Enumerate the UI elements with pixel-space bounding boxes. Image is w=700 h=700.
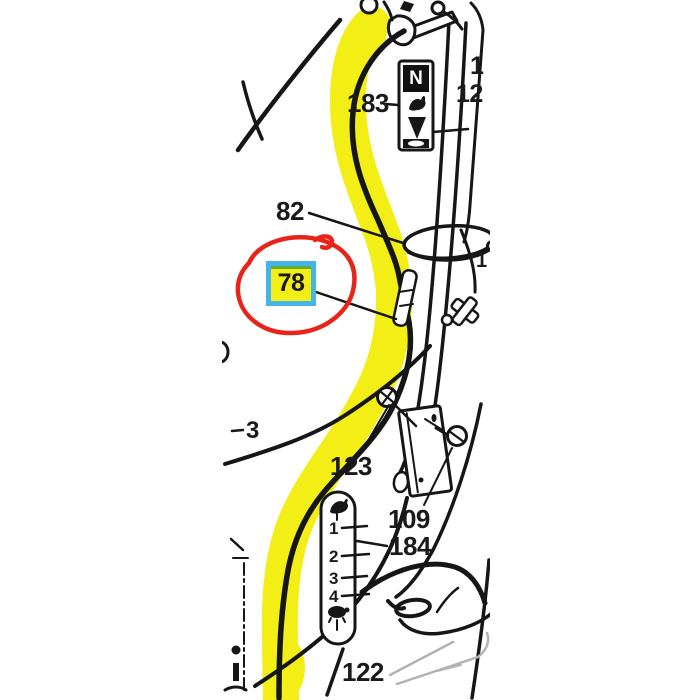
- part-label-12-partial: 12: [456, 82, 483, 107]
- part-label-1-partial: 1: [470, 54, 483, 79]
- part-label-1b-partial: 1: [476, 251, 487, 271]
- left-edge-partial-marks: [212, 342, 246, 690]
- handle-grip-upper-left: [238, 20, 340, 150]
- scale-mark-3: 3: [329, 570, 338, 587]
- scale-mark-1: 1: [329, 520, 338, 537]
- decal-letter-badge: N: [403, 65, 429, 92]
- part-label-184: 184: [389, 533, 431, 559]
- part-label-123: 123: [330, 453, 372, 479]
- part-label-109: 109: [388, 506, 430, 532]
- scale-mark-4: 4: [329, 588, 338, 605]
- part-label-82: 82: [276, 198, 304, 224]
- callout-box-78: 78: [266, 261, 316, 306]
- part-label-3-partial: 3: [246, 419, 259, 443]
- part-label-122: 122: [342, 659, 384, 685]
- part-label-78: 78: [278, 271, 305, 296]
- part-label-183: 183: [347, 90, 389, 116]
- scale-mark-2: 2: [329, 548, 338, 565]
- deck-outline-light: [390, 633, 488, 684]
- parts-diagram-page: 78 183 82 123 109 184 122 3 1 12 1 N 1 2…: [0, 0, 700, 700]
- scale-decal: [321, 492, 369, 644]
- decal-letter: N: [409, 68, 423, 90]
